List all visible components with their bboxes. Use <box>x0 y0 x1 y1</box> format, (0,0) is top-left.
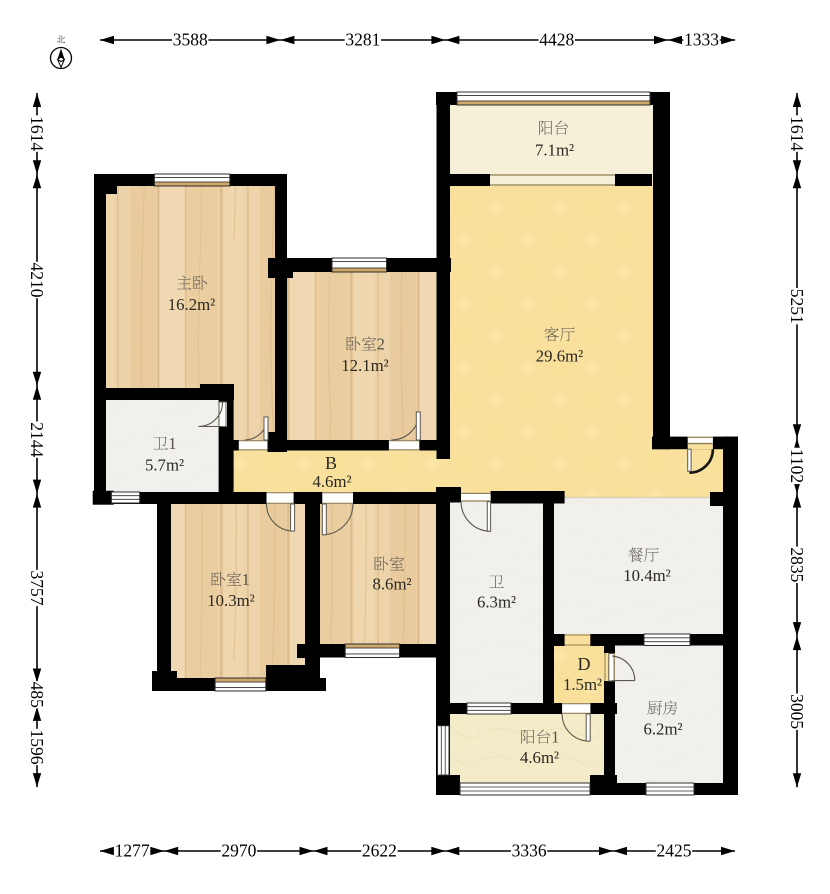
svg-text:4210: 4210 <box>27 263 47 298</box>
svg-text:12.1m²: 12.1m² <box>341 356 388 375</box>
svg-text:1596: 1596 <box>27 730 47 765</box>
svg-text:1333: 1333 <box>684 30 719 50</box>
svg-text:7.1m²: 7.1m² <box>535 141 574 160</box>
svg-text:29.6m²: 29.6m² <box>536 347 583 366</box>
svg-text:2: 2 <box>377 335 385 354</box>
svg-text:1: 1 <box>551 728 559 747</box>
svg-text:2425: 2425 <box>657 841 692 861</box>
svg-text:4.6m²: 4.6m² <box>520 748 559 767</box>
svg-text:D: D <box>578 654 591 674</box>
svg-text:485: 485 <box>27 682 47 709</box>
svg-text:3005: 3005 <box>787 694 807 729</box>
svg-text:8.6m²: 8.6m² <box>372 575 411 594</box>
svg-text:1: 1 <box>168 434 176 453</box>
svg-text:10.3m²: 10.3m² <box>207 591 254 610</box>
svg-text:16.2m²: 16.2m² <box>168 295 215 314</box>
svg-text:B: B <box>325 453 337 473</box>
svg-text:1614: 1614 <box>27 116 47 151</box>
svg-text:1: 1 <box>242 570 250 589</box>
svg-text:1.5m²: 1.5m² <box>563 675 602 694</box>
svg-text:2144: 2144 <box>27 422 47 457</box>
svg-text:2622: 2622 <box>362 841 397 861</box>
svg-text:3588: 3588 <box>173 30 208 50</box>
svg-text:6.2m²: 6.2m² <box>643 720 682 739</box>
svg-text:6.3m²: 6.3m² <box>477 593 516 612</box>
svg-text:2970: 2970 <box>221 841 256 861</box>
svg-text:3757: 3757 <box>27 571 47 606</box>
svg-text:5.7m²: 5.7m² <box>145 456 184 475</box>
svg-text:5251: 5251 <box>787 289 807 324</box>
svg-text:10.4m²: 10.4m² <box>623 566 670 585</box>
svg-text:3336: 3336 <box>512 841 547 861</box>
svg-text:3281: 3281 <box>345 30 380 50</box>
svg-text:4.6m²: 4.6m² <box>312 472 351 491</box>
svg-text:2835: 2835 <box>787 547 807 582</box>
svg-text:1277: 1277 <box>115 841 150 861</box>
svg-text:1102: 1102 <box>787 449 807 483</box>
svg-text:1614: 1614 <box>787 116 807 151</box>
svg-text:4428: 4428 <box>539 30 574 50</box>
